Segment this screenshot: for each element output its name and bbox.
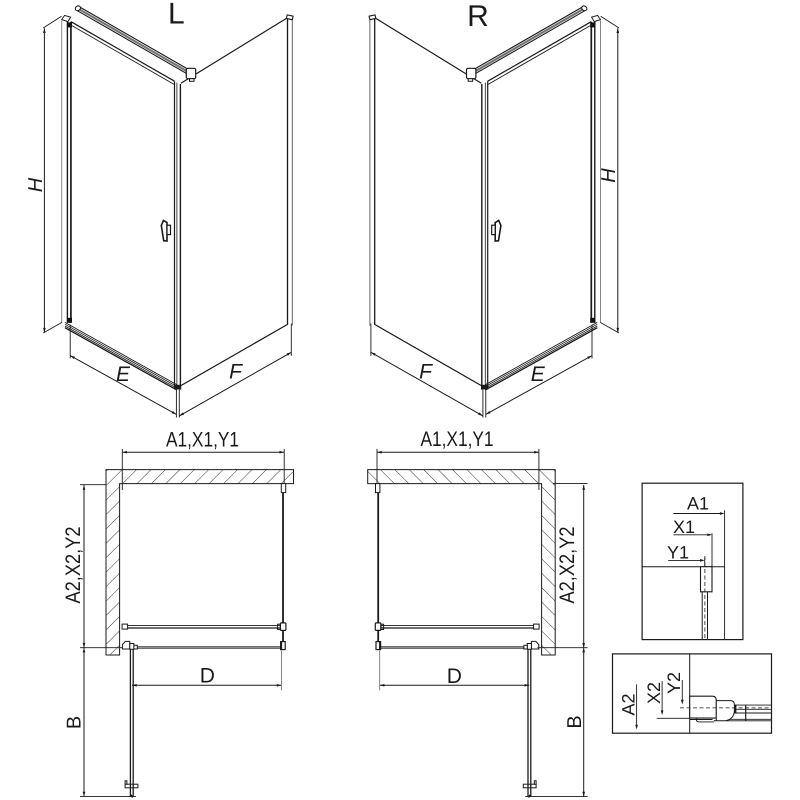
svg-text:X1: X1 [673, 517, 695, 537]
svg-text:Y2: Y2 [664, 672, 684, 694]
svg-text:A1,X1,Y1: A1,X1,Y1 [166, 429, 239, 452]
svg-text:Y1: Y1 [667, 543, 689, 563]
svg-text:D: D [200, 665, 215, 688]
svg-text:R: R [467, 0, 489, 33]
svg-text:A2: A2 [618, 693, 638, 715]
svg-text:E: E [116, 363, 131, 386]
svg-text:X2: X2 [644, 682, 664, 704]
svg-text:E: E [531, 363, 546, 386]
svg-text:A2,X2,Y2: A2,X2,Y2 [556, 527, 579, 604]
svg-text:D: D [447, 665, 462, 688]
svg-text:A2,X2,Y2: A2,X2,Y2 [62, 527, 85, 604]
svg-text:H: H [598, 168, 620, 183]
svg-text:F: F [419, 361, 433, 384]
svg-text:B: B [564, 715, 586, 728]
svg-text:L: L [168, 0, 185, 31]
svg-text:A1: A1 [687, 493, 709, 513]
svg-text:F: F [229, 361, 243, 384]
svg-text:B: B [63, 716, 85, 729]
svg-text:H: H [25, 177, 47, 192]
svg-text:A1,X1,Y1: A1,X1,Y1 [421, 428, 494, 451]
